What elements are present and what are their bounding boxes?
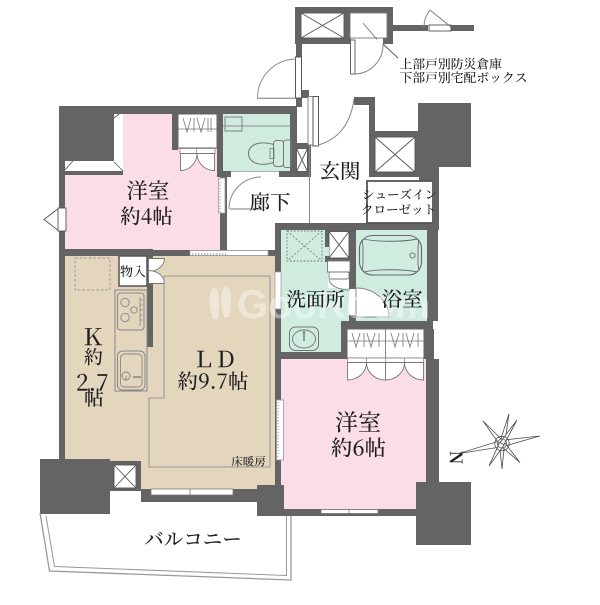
svg-text:GooRoom: GooRoom (237, 283, 430, 327)
